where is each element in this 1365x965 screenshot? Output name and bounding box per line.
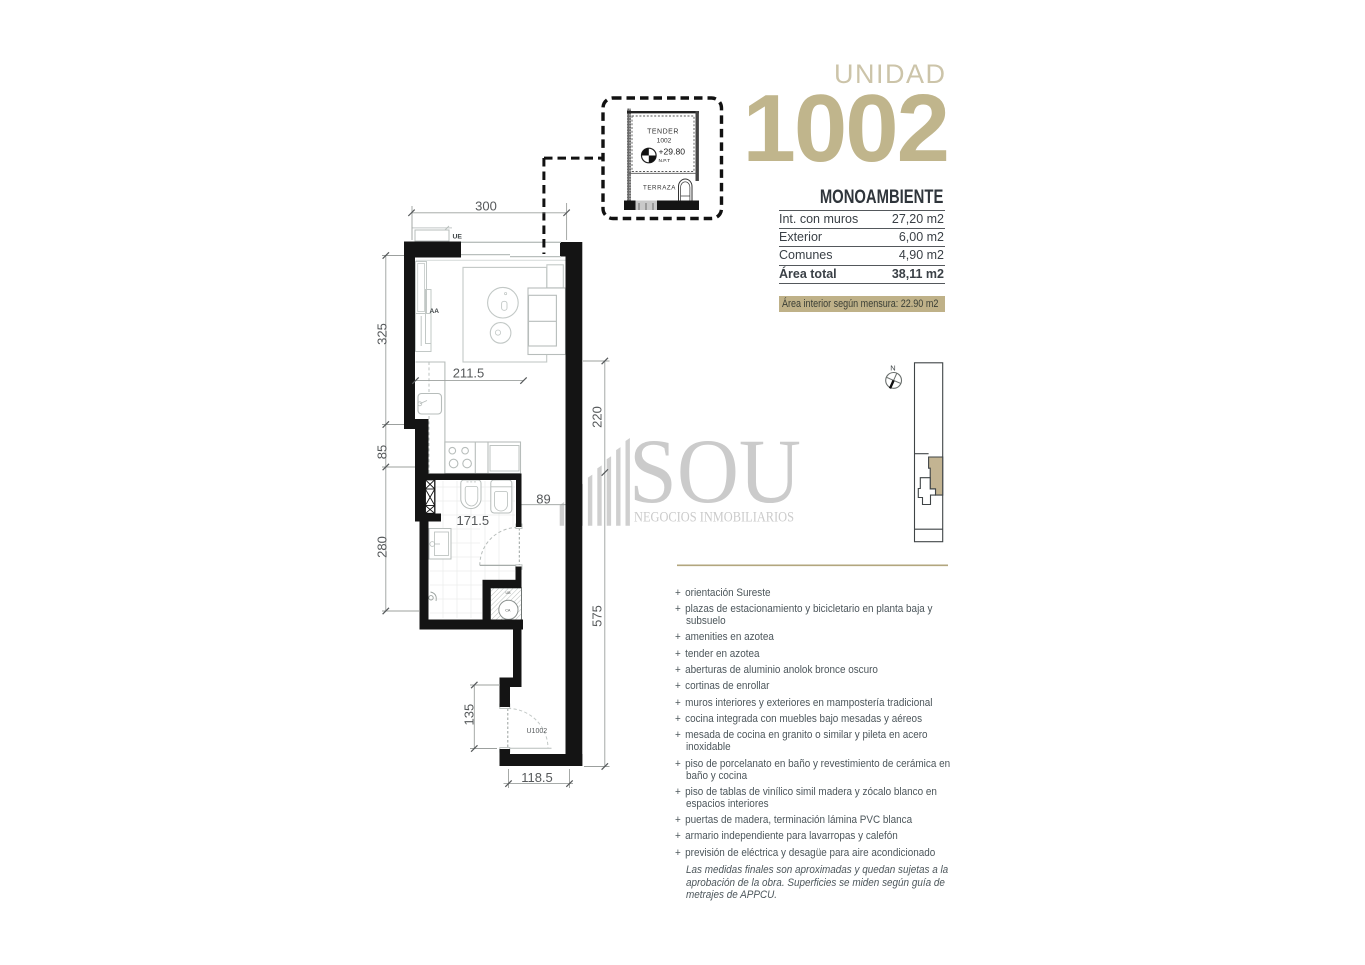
svg-text:UB: UB [506, 591, 512, 595]
svg-text:SOU: SOU [629, 420, 801, 522]
svg-text:UE: UE [453, 234, 463, 241]
svg-text:+29.80: +29.80 [659, 147, 686, 157]
svg-text:575: 575 [589, 605, 604, 627]
svg-text:135: 135 [461, 704, 476, 726]
svg-text:CA: CA [505, 608, 511, 612]
svg-text:U1002: U1002 [527, 728, 548, 735]
svg-text:N: N [890, 364, 895, 373]
svg-text:211.5: 211.5 [453, 366, 485, 381]
svg-text:1002: 1002 [657, 138, 672, 145]
svg-text:TENDER: TENDER [647, 129, 679, 136]
svg-text:89: 89 [536, 491, 550, 506]
svg-text:NEGOCIOS INMOBILIARIOS: NEGOCIOS INMOBILIARIOS [634, 510, 794, 526]
svg-text:118.5: 118.5 [521, 770, 553, 785]
svg-text:N.P.T: N.P.T [659, 158, 671, 164]
svg-text:325: 325 [374, 323, 389, 345]
svg-text:300: 300 [475, 199, 497, 214]
svg-text:TERRAZA: TERRAZA [643, 185, 676, 192]
svg-text:85: 85 [374, 445, 389, 459]
svg-text:171.5: 171.5 [457, 513, 490, 528]
svg-text:280: 280 [374, 536, 389, 558]
svg-text:AA: AA [430, 308, 440, 315]
svg-text:220: 220 [589, 406, 604, 428]
